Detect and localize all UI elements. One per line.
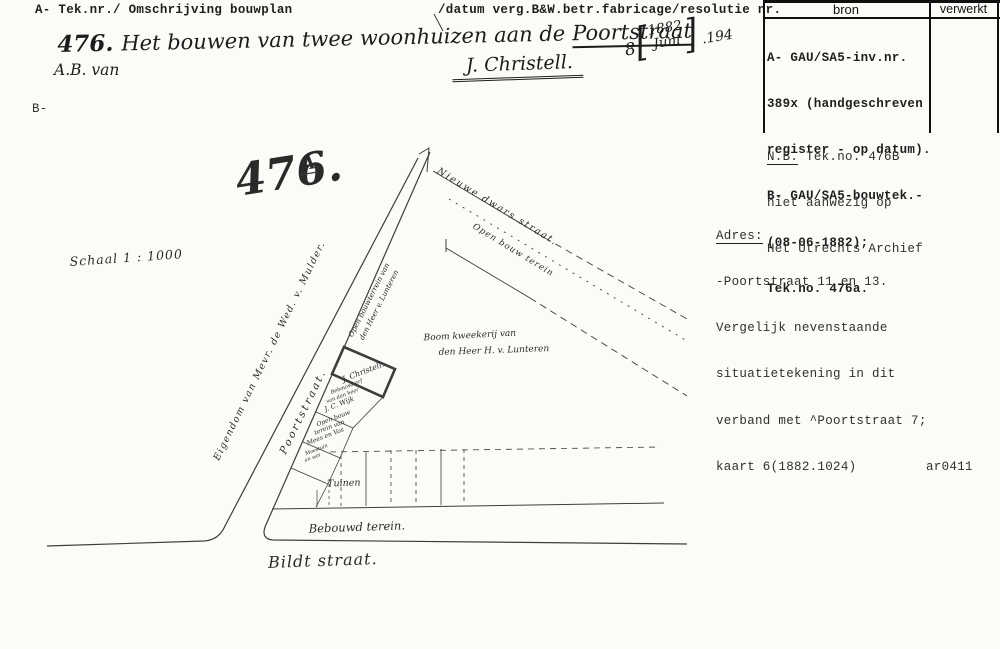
boomkweekerij-label: Boom kweekerij van xyxy=(422,329,516,344)
archive-card-page: A- Tek.nr./ Omschrijving bouwplan /datum… xyxy=(0,0,1000,649)
bebouwd-terein-label: Bebouwd terein. xyxy=(308,518,406,535)
poortstraat-left-edge xyxy=(47,158,418,546)
scale-label: Schaal 1 : 1000 xyxy=(69,246,183,269)
tuinen-top-boundary xyxy=(330,447,660,452)
pen-mark xyxy=(434,14,443,31)
lot-divider xyxy=(291,468,328,484)
street-corner-line xyxy=(419,148,429,172)
dwarsstraat-lower-edge xyxy=(449,199,687,341)
bebouwd-band-top-line xyxy=(272,503,664,509)
bildtstraat-label: Bildt straat. xyxy=(267,549,378,572)
dwarsstraat-upper-edge-dashed xyxy=(545,238,687,319)
tuinen-label: Tuinen xyxy=(327,477,361,489)
boomkweekerij-label: den Heer H. v. Lunteren xyxy=(438,344,549,358)
eigendom-label: Eigendom van Mevr. de Wed. v. Mulder. xyxy=(211,239,328,463)
situation-sketch: 476. A Schaal 1 : 1000 Eigendom van Mevr… xyxy=(0,0,1000,649)
plan-number-large: 476. xyxy=(232,140,346,207)
wedge-boundary-dashed xyxy=(530,298,687,396)
